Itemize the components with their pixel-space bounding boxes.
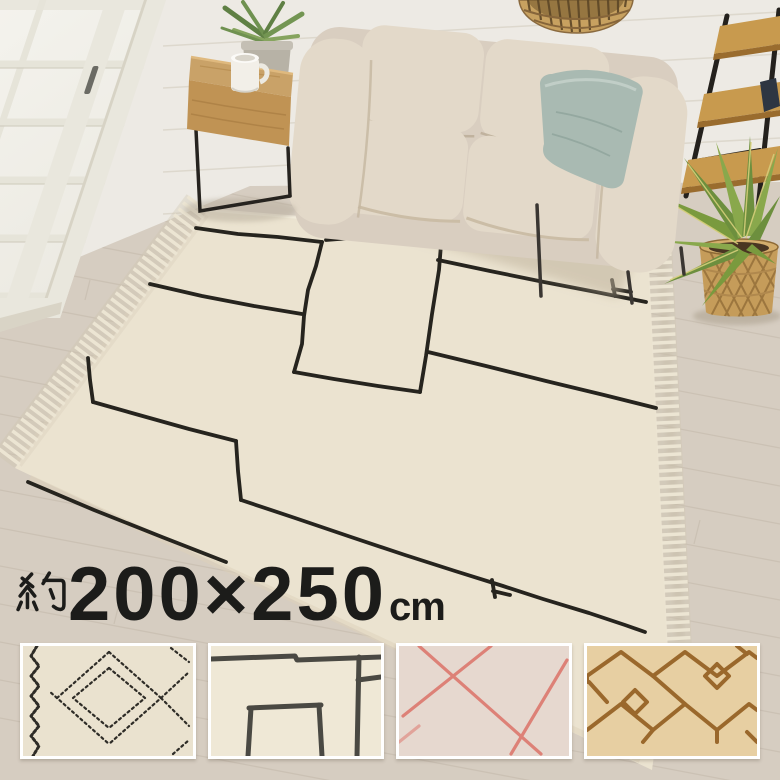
variant-thumb-ivory-dotted-diamond[interactable] [20, 643, 196, 759]
size-approx-kanji: 約 [16, 570, 66, 622]
size-label: 約 200×250 cm [16, 552, 445, 624]
sofa-back-cushion [355, 23, 486, 134]
variant-thumbnails [0, 640, 780, 763]
size-unit: cm [389, 590, 445, 624]
variant-thumb-beige-trellis[interactable] [584, 643, 760, 759]
size-dimensions: 200×250 [68, 565, 387, 624]
product-photo: 約 200×250 cm [0, 0, 780, 780]
variant-thumb-ivory-block-lines[interactable] [208, 643, 384, 759]
variant-thumb-pink-diamond[interactable] [396, 643, 572, 759]
